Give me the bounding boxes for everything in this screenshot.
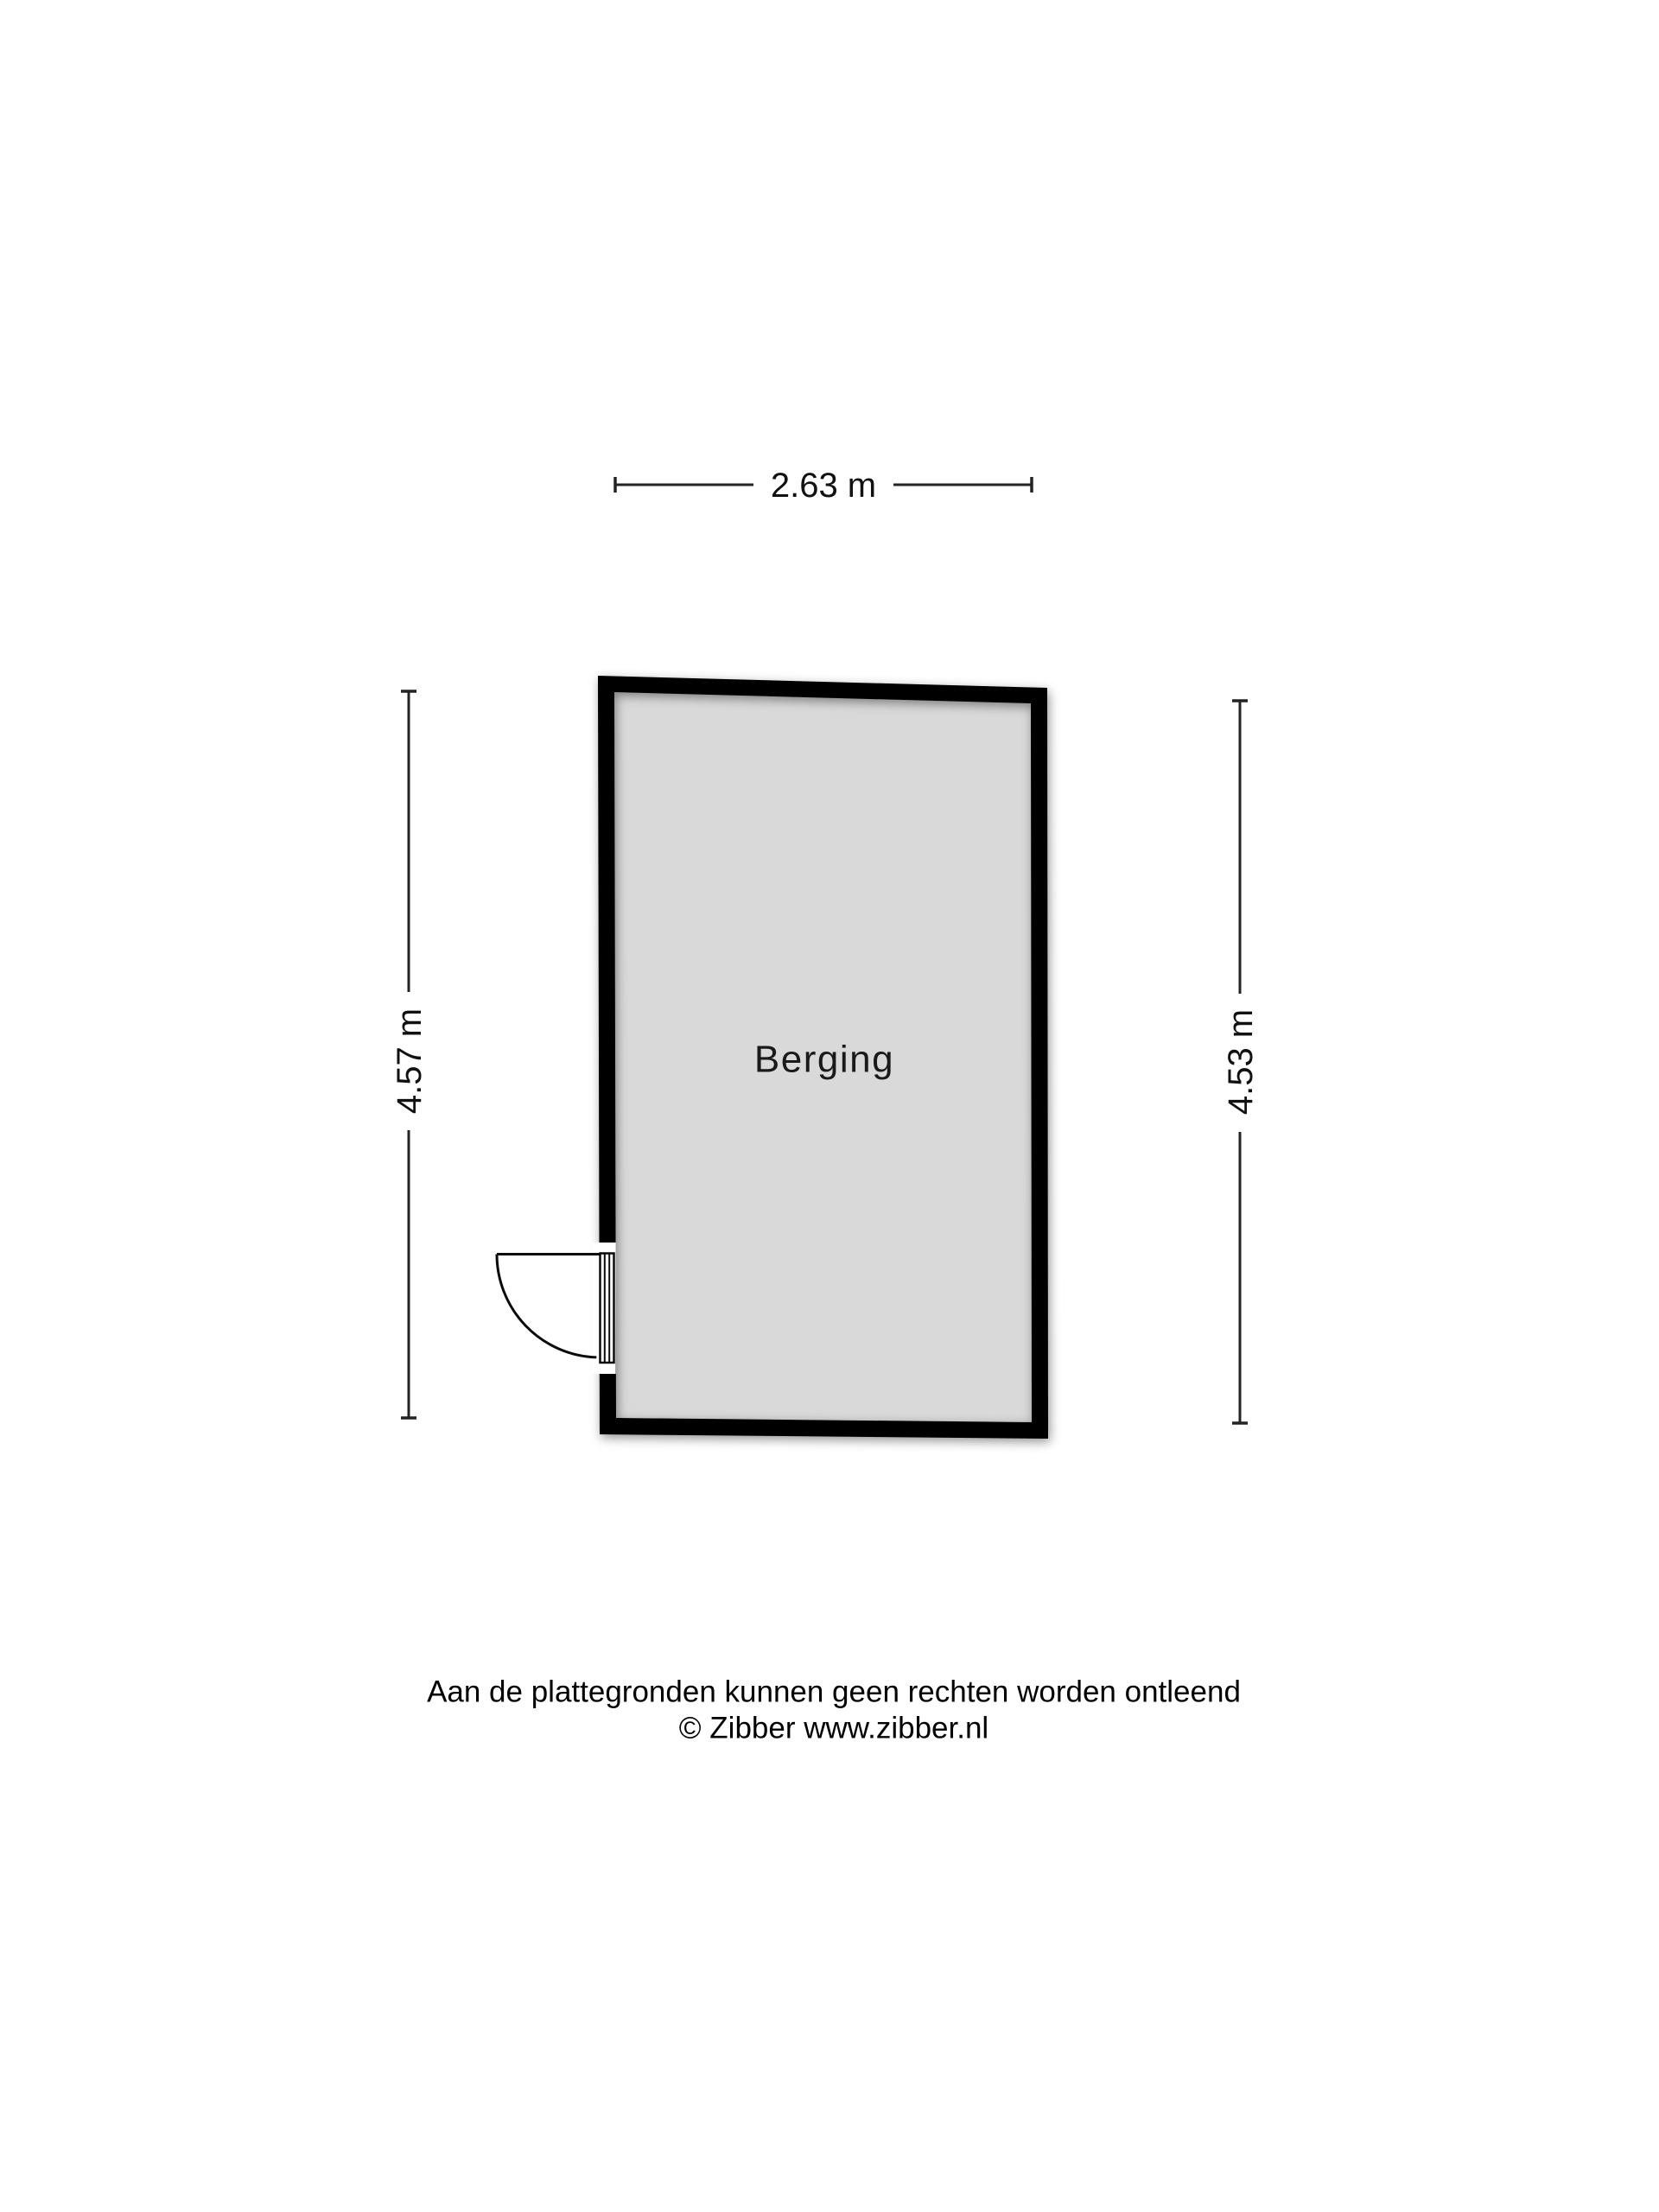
dimension-top: 2.63 m [615, 467, 1032, 505]
dimension-left-label: 4.57 m [391, 1008, 429, 1114]
door-jamb [601, 1254, 614, 1363]
door-swing-arc [497, 1255, 596, 1357]
dimension-left: 4.57 m [391, 691, 429, 1418]
footer-copyright: © Zibber www.zibber.nl [679, 1711, 988, 1745]
room-berging: Berging [497, 676, 1048, 1439]
footer: Aan de plattegronden kunnen geen rechten… [427, 1675, 1241, 1745]
room-label: Berging [754, 1038, 894, 1080]
dimension-right-label: 4.53 m [1222, 1009, 1260, 1115]
floorplan-canvas: 2.63 m 4.57 m 4.53 m [0, 0, 1659, 2212]
dimension-right: 4.53 m [1222, 701, 1260, 1423]
floorplan-page: 2.63 m 4.57 m 4.53 m [0, 0, 1659, 2212]
footer-disclaimer: Aan de plattegronden kunnen geen rechten… [427, 1675, 1241, 1708]
dimension-top-label: 2.63 m [771, 467, 876, 505]
